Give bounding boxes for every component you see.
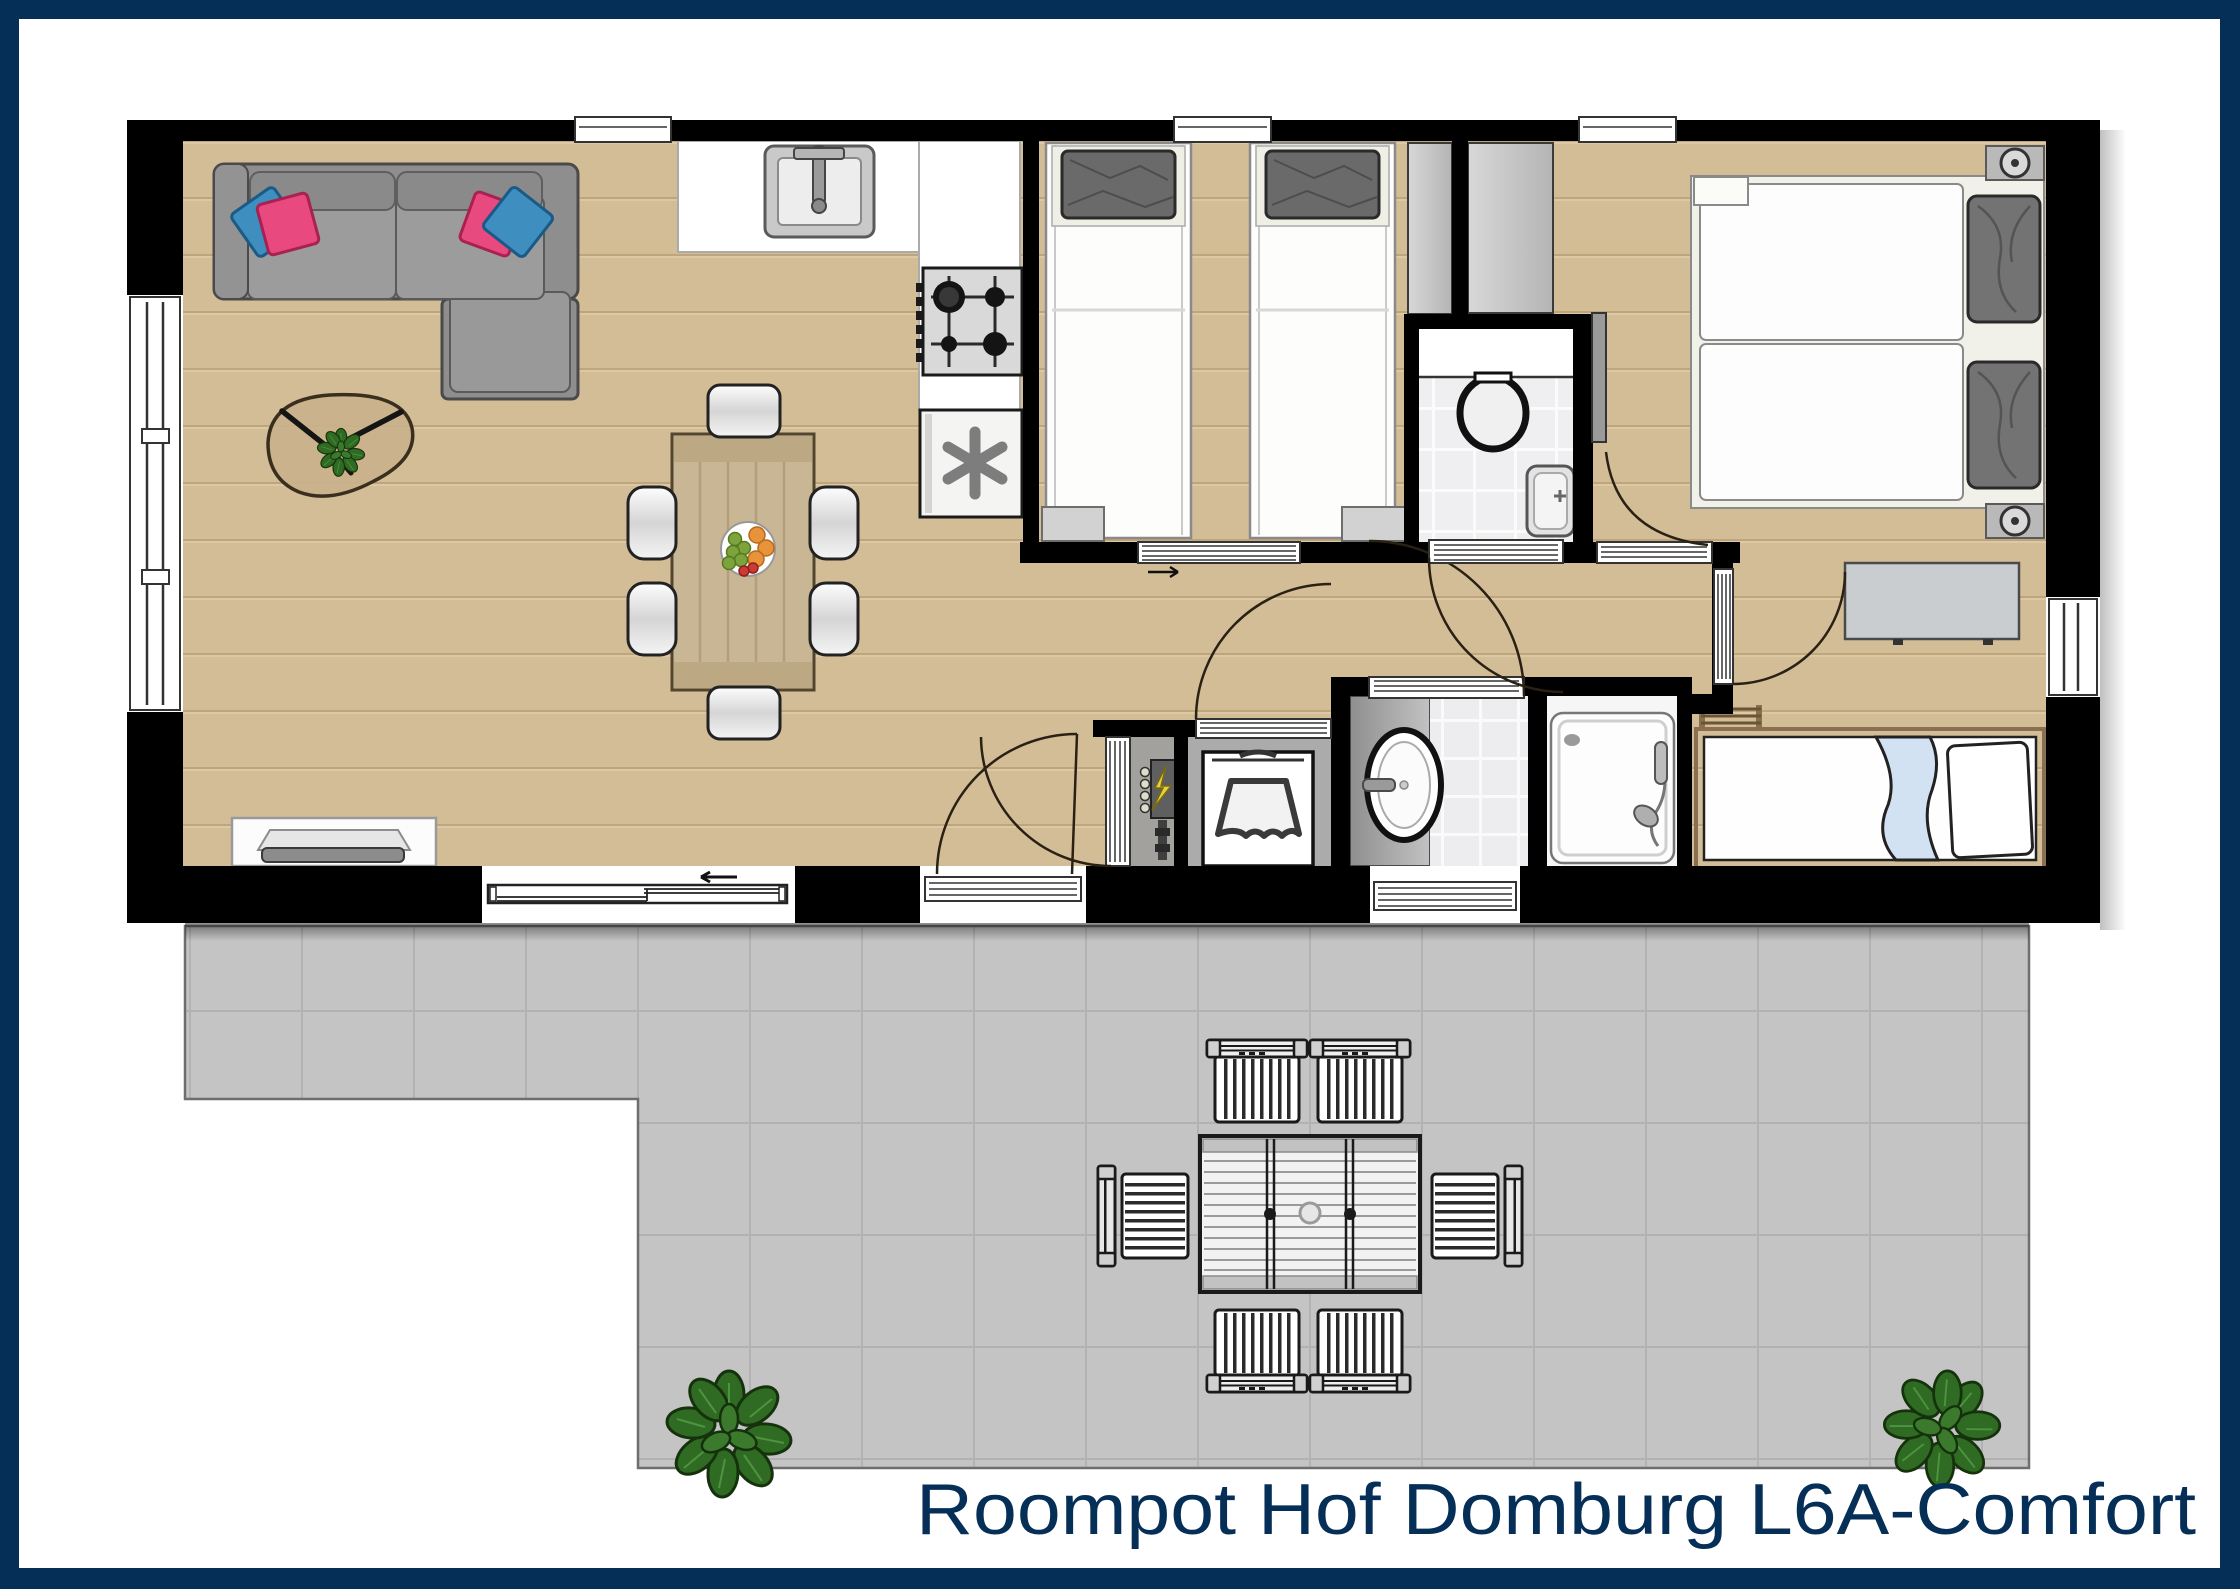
svg-text:Roompot Hof Domburg L6A-Comfor: Roompot Hof Domburg L6A-Comfort	[916, 1470, 2196, 1550]
